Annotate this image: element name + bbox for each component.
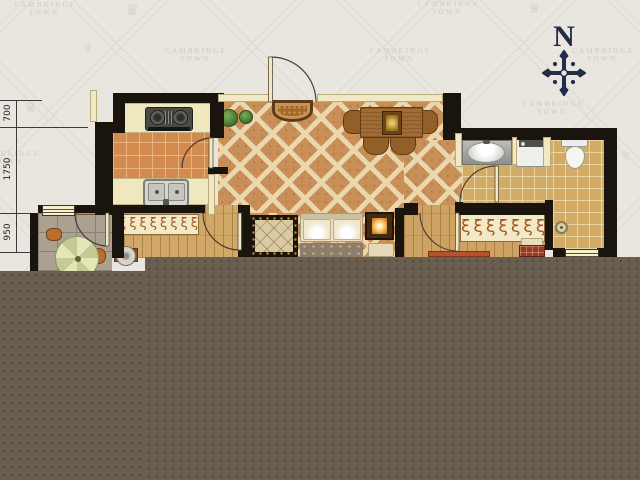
balcony-door-arc <box>75 213 108 246</box>
floor-plan-canvas: CAMBRIDGETOWN CAMBRIDGETOWN CAMBRIDGETOW… <box>0 0 640 480</box>
bathroom-door-arc <box>460 166 497 202</box>
bedroom2-door-arc <box>420 213 458 251</box>
bedroom1-door-leaf <box>238 213 242 250</box>
entry-door-leaf <box>269 57 273 102</box>
occlusion-block <box>0 271 145 480</box>
occlusion-block <box>145 257 640 480</box>
kitchen-door-arc <box>182 138 212 168</box>
balcony-door-leaf <box>106 213 110 246</box>
entry-door-arc <box>271 57 316 102</box>
kitchen-door-leaf <box>209 138 213 168</box>
bedroom2-door-leaf <box>456 213 460 251</box>
bedroom1-door-arc <box>203 213 240 250</box>
bathroom-door-leaf <box>495 166 499 202</box>
